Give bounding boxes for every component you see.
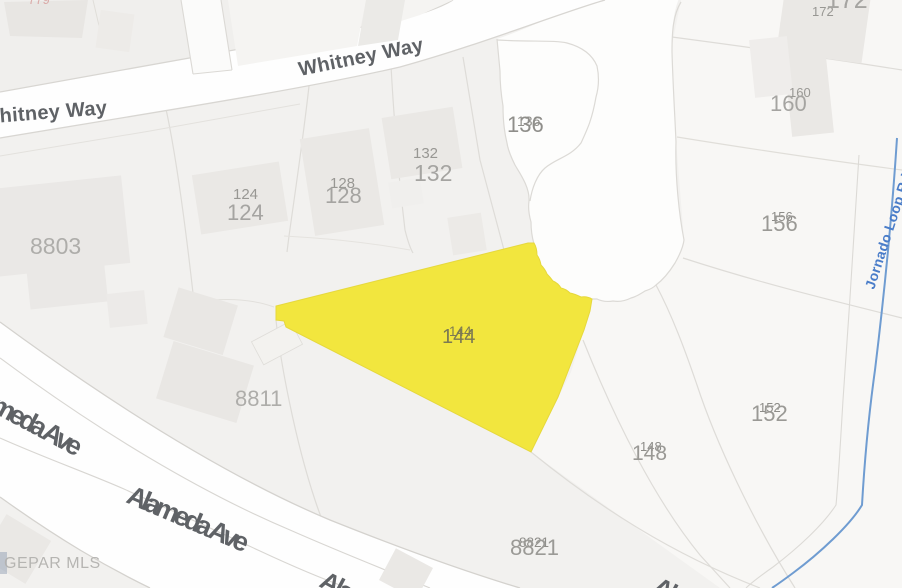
svg-text:124: 124 — [227, 200, 264, 225]
svg-text:172: 172 — [826, 0, 868, 14]
svg-text:8811: 8811 — [235, 386, 282, 411]
svg-text:8803: 8803 — [30, 233, 81, 259]
svg-text:132: 132 — [414, 160, 452, 186]
svg-text:160: 160 — [770, 91, 807, 116]
svg-text:8821: 8821 — [510, 535, 559, 560]
svg-text:148: 148 — [632, 442, 667, 465]
svg-text:779: 779 — [28, 0, 50, 7]
svg-text:136: 136 — [507, 112, 544, 137]
svg-text:GEPAR MLS: GEPAR MLS — [4, 555, 101, 572]
svg-text:144: 144 — [442, 326, 475, 348]
svg-text:156: 156 — [761, 211, 798, 236]
svg-text:128: 128 — [325, 183, 362, 208]
svg-text:152: 152 — [751, 401, 788, 426]
